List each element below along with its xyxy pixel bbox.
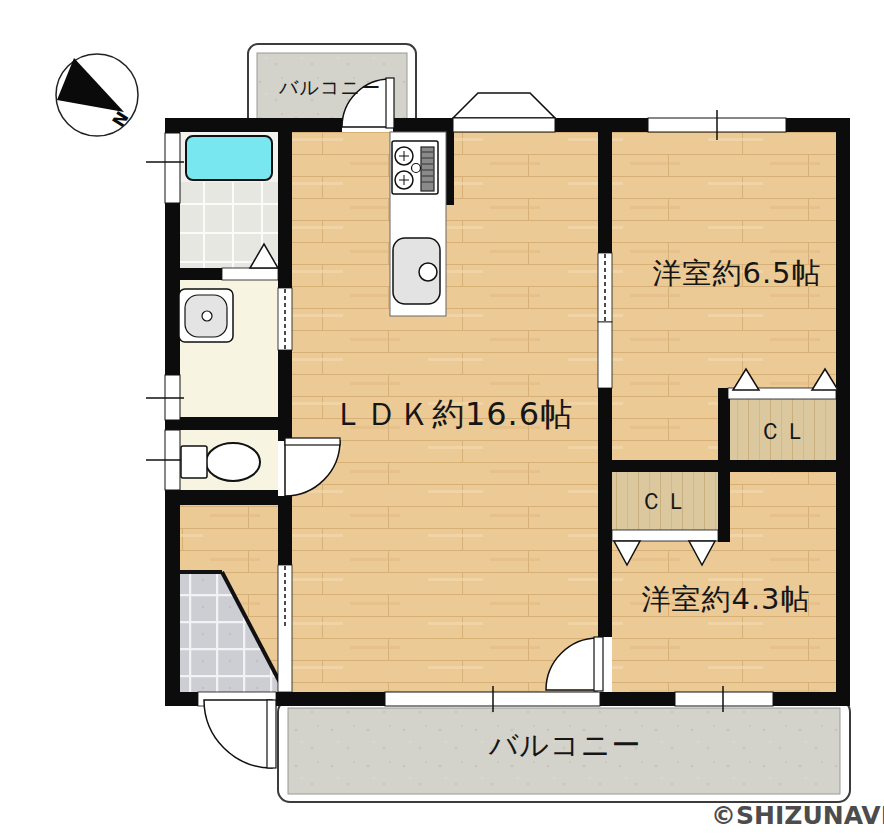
kitchen-window-icon — [453, 118, 555, 132]
bathtub-icon — [186, 136, 272, 180]
bay-window-icon — [453, 93, 555, 118]
closet-lower-label: ＣＬ — [617, 489, 713, 514]
compass-north-icon: N — [56, 54, 138, 136]
toilet-icon — [181, 443, 260, 481]
entrance-door-icon — [204, 700, 272, 768]
watermark: ©SHIZUNAVI — [711, 802, 884, 830]
room43-window-icon — [675, 692, 773, 706]
gas-stove-icon — [392, 141, 438, 194]
closet-upper-label: ＣＬ — [736, 419, 832, 444]
balcony-top-label: バルコニー — [255, 77, 405, 98]
balcony-bottom-label: バルコニー — [465, 730, 665, 762]
floorplan-canvas: N バルコニー ＬＤＫ約16.6帖 洋室約6.5帖 洋室約4.3帖 ＣＬ ＣＬ … — [0, 0, 884, 835]
bathroom-window-icon — [165, 133, 180, 203]
ldk-label: ＬＤＫ約16.6帖 — [303, 397, 603, 432]
washbasin-icon — [179, 289, 233, 342]
room-65-label: 洋室約6.5帖 — [607, 258, 867, 290]
kitchen-counter — [390, 132, 446, 316]
kitchen-sink-icon — [393, 238, 440, 304]
room-43-label: 洋室約4.3帖 — [596, 584, 856, 616]
